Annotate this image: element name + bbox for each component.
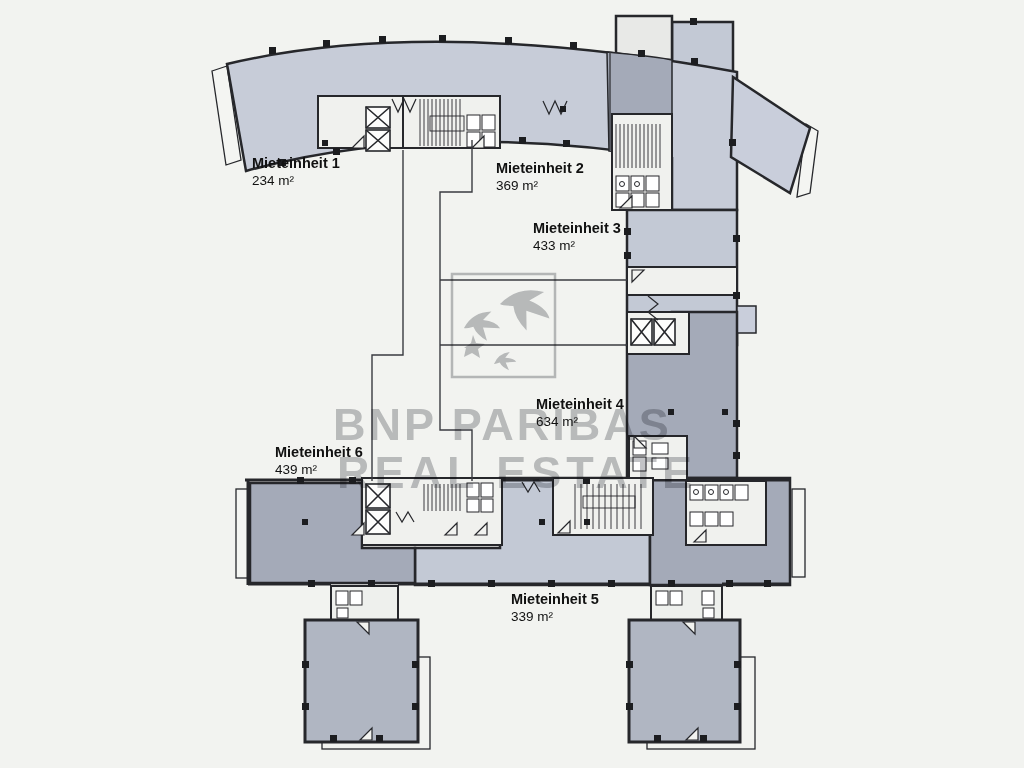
tower-right (629, 620, 740, 742)
unit-name: Mieteinheit 5 (511, 591, 599, 609)
unit-name: Mieteinheit 2 (496, 160, 584, 178)
unit-label-3: Mieteinheit 3 433 m² (533, 220, 621, 254)
unit-area: 339 m² (511, 609, 599, 625)
watermark-text-line2: REAL ESTATE (337, 447, 697, 499)
unit-name: Mieteinheit 1 (252, 155, 340, 173)
unit-area: 634 m² (536, 414, 624, 430)
unit-label-4: Mieteinheit 4 634 m² (536, 396, 624, 430)
unit-area: 433 m² (533, 238, 621, 254)
top-wing-end-pavilion (731, 77, 810, 193)
shaft-bump (737, 306, 756, 333)
unit-label-5: Mieteinheit 5 339 m² (511, 591, 599, 625)
unit-label-2: Mieteinheit 2 369 m² (496, 160, 584, 194)
floor-plan-page: BNP PARIBAS REAL ESTATE Mieteinheit 1 23… (0, 0, 1024, 768)
tower-left (305, 620, 418, 742)
bnp-paribas-birds-logo (450, 272, 557, 379)
floor-plan-drawing (0, 0, 1024, 768)
unit-name: Mieteinheit 3 (533, 220, 621, 238)
unit-label-6: Mieteinheit 6 439 m² (275, 444, 363, 478)
unit-name: Mieteinheit 4 (536, 396, 624, 414)
unit-name: Mieteinheit 6 (275, 444, 363, 462)
unit-area: 234 m² (252, 173, 340, 189)
unit-area: 369 m² (496, 178, 584, 194)
unit-area: 439 m² (275, 462, 363, 478)
unit-label-1: Mieteinheit 1 234 m² (252, 155, 340, 189)
